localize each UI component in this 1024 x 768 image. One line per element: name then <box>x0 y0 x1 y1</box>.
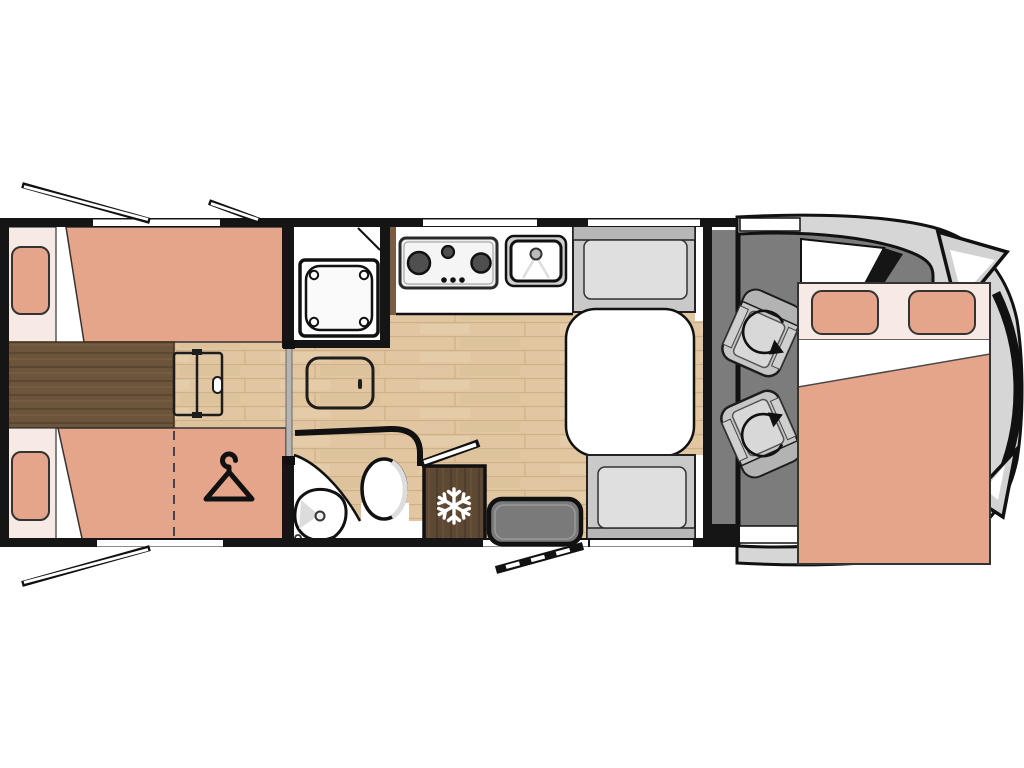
fridge-freezer <box>424 466 485 544</box>
wall-cab-bulkhead <box>703 221 712 547</box>
mattress-top-bed <box>66 227 286 342</box>
dinette-table <box>566 309 694 456</box>
cab-door-sill-bottom <box>738 526 798 543</box>
hob <box>400 238 497 288</box>
pillow-bottom-bed <box>12 452 49 520</box>
bench-seat-front <box>573 224 695 312</box>
burner-large <box>408 252 430 274</box>
wall-bedroom-partition-top <box>282 221 294 348</box>
window-bedroom-bottom <box>97 540 223 547</box>
wall-bedroom-partition-bottom <box>282 456 294 547</box>
wall-shower-right <box>380 221 390 348</box>
mattress-bottom-bed <box>58 428 286 543</box>
wall-corner <box>703 524 740 547</box>
wall-rear <box>0 218 9 547</box>
basin-faucet <box>316 512 325 521</box>
shower-cabin <box>294 227 382 344</box>
pillow-top-bed <box>12 247 49 314</box>
window-bedroom-top <box>93 220 220 227</box>
window-dinette-bottom <box>590 540 693 547</box>
bed-blanket <box>798 354 990 564</box>
sink-faucet <box>531 249 542 260</box>
kitchen-sink <box>506 236 566 286</box>
window-kitchen <box>423 220 537 227</box>
cab-door-sill-top <box>740 218 800 231</box>
burner-medium <box>472 254 491 273</box>
toilet <box>361 459 409 531</box>
kitchen <box>390 227 573 315</box>
dinette <box>566 221 705 543</box>
floor-plan-canvas <box>0 0 1024 768</box>
burner-small <box>442 246 454 258</box>
pillow-left <box>812 291 878 334</box>
kitchen-side-panel <box>390 227 396 315</box>
floor-plan <box>0 0 1024 768</box>
window-dinette-top <box>588 220 700 227</box>
bench-seat-rear <box>587 455 695 543</box>
wall-shower-bottom <box>282 340 390 348</box>
washbasin <box>295 489 346 541</box>
drop-down-double-bed <box>798 283 990 564</box>
under-bed-chest <box>8 342 174 428</box>
pillow-right <box>909 291 975 334</box>
